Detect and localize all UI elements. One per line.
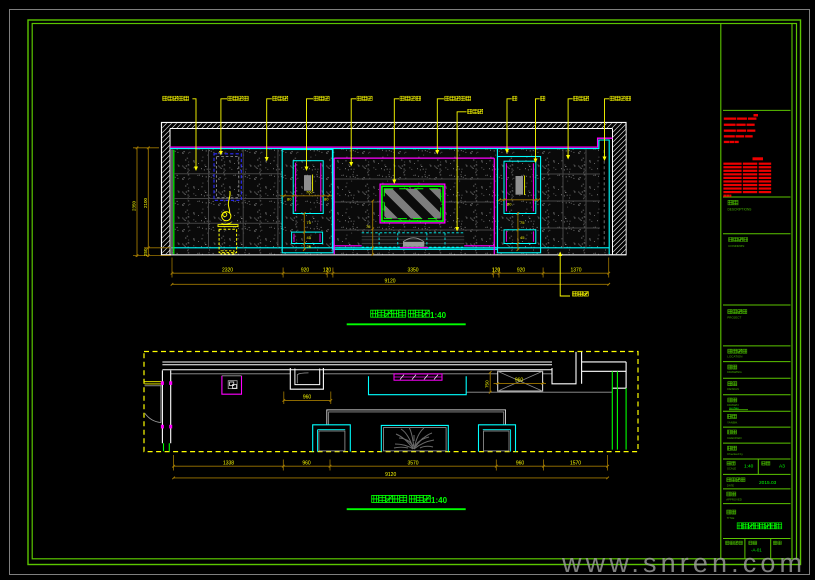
svg-text:PROJECT: PROJECT (727, 316, 741, 320)
svg-text:9120: 9120 (384, 279, 395, 285)
svg-text:www.snren.com: www.snren.com (561, 548, 802, 578)
svg-text:YANBH.: YANBH. (727, 421, 738, 425)
svg-text:DESIGN: DESIGN (727, 387, 739, 391)
svg-text:1338: 1338 (223, 461, 234, 467)
svg-text:960: 960 (516, 461, 525, 467)
svg-text:750: 750 (485, 380, 490, 388)
svg-text:960: 960 (303, 395, 312, 401)
svg-text:LOCATION: LOCATION (727, 355, 742, 359)
svg-text:2015.03: 2015.03 (759, 480, 777, 486)
svg-text:1:40: 1:40 (430, 311, 447, 320)
svg-text:920: 920 (301, 268, 310, 274)
svg-text:25: 25 (307, 244, 312, 249)
svg-text:A3: A3 (779, 464, 785, 470)
svg-text:75: 75 (366, 224, 371, 229)
svg-text:120: 120 (323, 268, 332, 274)
svg-text:45: 45 (307, 235, 312, 240)
svg-text:DESCRIPTIONS: DESCRIPTIONS (728, 208, 752, 212)
svg-text:920: 920 (517, 268, 526, 274)
svg-text:1370: 1370 (570, 268, 581, 274)
svg-text:APPROVED: APPROVED (726, 498, 742, 502)
svg-text:CONFIRMS:: CONFIRMS: (728, 244, 745, 248)
svg-text:1:40: 1:40 (431, 496, 448, 505)
svg-text:75: 75 (520, 220, 525, 225)
svg-text:80: 80 (324, 197, 329, 202)
svg-text:TITLE: TITLE (727, 516, 735, 520)
svg-text:120: 120 (492, 268, 501, 274)
svg-text:Checked by: Checked by (727, 452, 743, 456)
svg-text:1570: 1570 (570, 461, 581, 467)
svg-text:45: 45 (520, 235, 525, 240)
svg-text:SCALE: SCALE (727, 467, 736, 471)
svg-text:DRAWING: DRAWING (727, 370, 742, 374)
svg-text:CHECKED: CHECKED (727, 436, 743, 440)
svg-text:2100: 2100 (143, 197, 148, 208)
svg-text:80: 80 (287, 197, 292, 202)
svg-text:1:40: 1:40 (744, 464, 754, 470)
svg-text:2320: 2320 (222, 268, 233, 274)
svg-text:960: 960 (515, 377, 524, 383)
svg-text:250: 250 (143, 248, 148, 256)
svg-text:DATE: DATE (727, 484, 734, 488)
svg-text:9120: 9120 (385, 472, 396, 478)
svg-text:3570: 3570 (407, 461, 418, 467)
svg-text:75: 75 (307, 220, 312, 225)
svg-text:80: 80 (507, 202, 512, 207)
svg-text:760: 760 (306, 190, 313, 195)
svg-text:sunhao: sunhao (729, 406, 739, 410)
svg-text:3350: 3350 (407, 268, 418, 274)
svg-text:960: 960 (302, 461, 311, 467)
svg-text:2350: 2350 (132, 200, 137, 211)
